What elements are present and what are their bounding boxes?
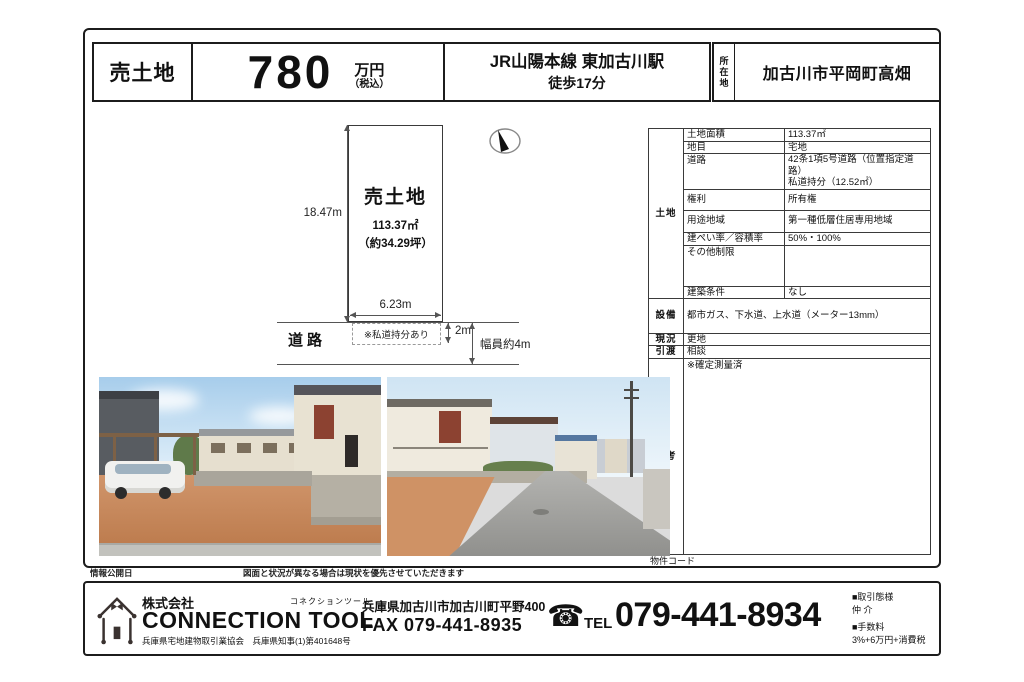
spec-table: 土地 土地面積 113.37㎡ 地目 宅地 道路 42条1項5号道路（位置指定道… <box>648 128 931 555</box>
block-wall-center <box>194 471 312 486</box>
spec-value: なし <box>785 286 931 298</box>
lot-plot: 売土地 113.37㎡ （約34.29坪） <box>348 125 443 322</box>
fax-number: FAX 079-441-8935 <box>362 615 522 636</box>
utilities-group-label: 設備 <box>649 298 684 333</box>
fee-value: 3%+6万円+消費税 <box>852 634 926 647</box>
spec-label: 土地面積 <box>684 129 785 142</box>
photo-vacant-lot <box>99 377 381 556</box>
land-group-label: 土地 <box>649 129 684 299</box>
private-road-box: ※私道持分あり <box>352 323 441 345</box>
price-cell: 780 万円 （税込） <box>193 44 444 100</box>
setback-arrow <box>448 323 449 343</box>
frontage-dimension: 6.23m <box>348 299 443 311</box>
spec-label: 建ぺい率／容積率 <box>684 232 785 245</box>
block-wall-right <box>311 475 381 525</box>
concrete-fence-right <box>643 469 670 529</box>
spec-value: 50%・100% <box>785 232 931 245</box>
handover-group-label: 引渡 <box>649 346 684 358</box>
company-name: CONNECTION TOOL <box>142 607 374 634</box>
spec-value: 第一種低層住居専用地域 <box>785 210 931 232</box>
photo-street-view <box>387 377 670 556</box>
spec-value: 113.37㎡ <box>785 129 931 142</box>
spec-value: 宅地 <box>785 142 931 154</box>
pole-crossarm <box>624 389 639 391</box>
red-shutter <box>314 405 334 439</box>
price-value: 780 <box>248 49 334 95</box>
spec-label: 道路 <box>684 154 785 189</box>
spec-label: 地目 <box>684 142 785 154</box>
spec-label: 権利 <box>684 189 785 210</box>
manhole <box>533 509 549 515</box>
price-tax-note: （税込） <box>349 79 389 91</box>
price-unit: 万円 <box>354 63 384 80</box>
spec-value: 都市ガス、下水道、上水道（メーター13mm） <box>684 298 931 333</box>
deal-info-block: ■取引態様 仲 介 ■手数料 3%+6万円+消費税 <box>852 591 926 647</box>
spec-label: 用途地域 <box>684 210 785 232</box>
disclaimer-text: 図面と状況が異なる場合は現状を優先させていただきます <box>243 567 464 579</box>
frontage-dimension-arrow <box>350 315 441 316</box>
car-wheel <box>159 487 171 499</box>
spec-value: 42条1項5号道路（位置指定道路） 私道持分（12.52㎡） <box>785 154 931 189</box>
depth-dimension-arrow <box>347 125 348 322</box>
utility-pole <box>630 381 633 477</box>
walk-time: 徒歩17分 <box>548 74 606 93</box>
footer-box: 株式会社 コネクションツール CONNECTION TOOL 兵庫県宅地建物取引… <box>83 581 941 656</box>
company-kana: コネクションツール <box>290 596 371 607</box>
address-header-box: 所在地 加古川市平岡町高畑 <box>712 42 941 102</box>
dark-door <box>345 435 358 467</box>
property-type-label: 売土地 <box>94 44 193 100</box>
house-center-windows <box>211 443 307 453</box>
lot-plot-label: 売土地 <box>364 182 427 209</box>
phone-icon: ☎ <box>547 602 584 632</box>
status-group-label: 現況 <box>649 333 684 345</box>
station-cell: JR山陽本線 東加古川駅 徒歩17分 <box>445 44 709 100</box>
spec-value <box>785 245 931 286</box>
house-logo-icon <box>95 591 139 647</box>
street-curb <box>99 543 381 556</box>
balcony-rail <box>393 447 488 449</box>
spec-value: 更地 <box>684 333 931 345</box>
fee-label: ■手数料 <box>852 621 926 634</box>
spec-label: その他制限 <box>684 245 785 286</box>
road-edge-far <box>277 364 519 365</box>
spec-value: 相談 <box>684 346 931 358</box>
car-window <box>115 464 171 474</box>
spec-label: 建築条件 <box>684 286 785 298</box>
property-address: 加古川市平岡町高畑 <box>735 44 939 100</box>
tel-label: TEL <box>584 615 612 632</box>
lot-tsubo: （約34.29坪） <box>358 235 433 251</box>
deal-type-label: ■取引態様 <box>852 591 926 604</box>
tel-number: 079-441-8934 <box>615 598 821 632</box>
road-width-dimension: 幅員約4m <box>480 336 530 352</box>
depth-dimension: 18.47m <box>288 207 342 219</box>
spec-value: 所有権 <box>785 189 931 210</box>
flyer-page: 売土地 780 万円 （税込） JR山陽本線 東加古川駅 徒歩17分 所在地 加… <box>0 0 1024 682</box>
license-text: 兵庫県宅地建物取引業協会 兵庫県知事(1)第401648号 <box>142 635 351 647</box>
station-line: JR山陽本線 東加古川駅 <box>490 51 664 73</box>
price-header-box: 売土地 780 万円 （税込） <box>92 42 446 102</box>
location-label: 所在地 <box>714 44 735 100</box>
car-wheel <box>115 487 127 499</box>
private-road-note: ※私道持分あり <box>364 327 429 341</box>
road-width-arrow <box>472 323 473 364</box>
red-shutter <box>439 411 461 443</box>
road-label: 道路 <box>288 329 326 350</box>
publish-date-label: 情報公開日 <box>90 567 133 579</box>
price-unit-block: 万円 （税込） <box>349 63 389 92</box>
station-header-box: JR山陽本線 東加古川駅 徒歩17分 <box>443 42 711 102</box>
lot-area: 113.37㎡ <box>372 217 418 233</box>
office-address: 兵庫県加古川市加古川町平野400 <box>362 596 545 615</box>
carport-post <box>193 433 196 475</box>
compass-icon <box>488 127 522 155</box>
remarks-value: ※確定測量済 <box>684 358 931 554</box>
deal-type-value: 仲 介 <box>852 604 926 617</box>
pole-crossarm <box>624 397 639 399</box>
